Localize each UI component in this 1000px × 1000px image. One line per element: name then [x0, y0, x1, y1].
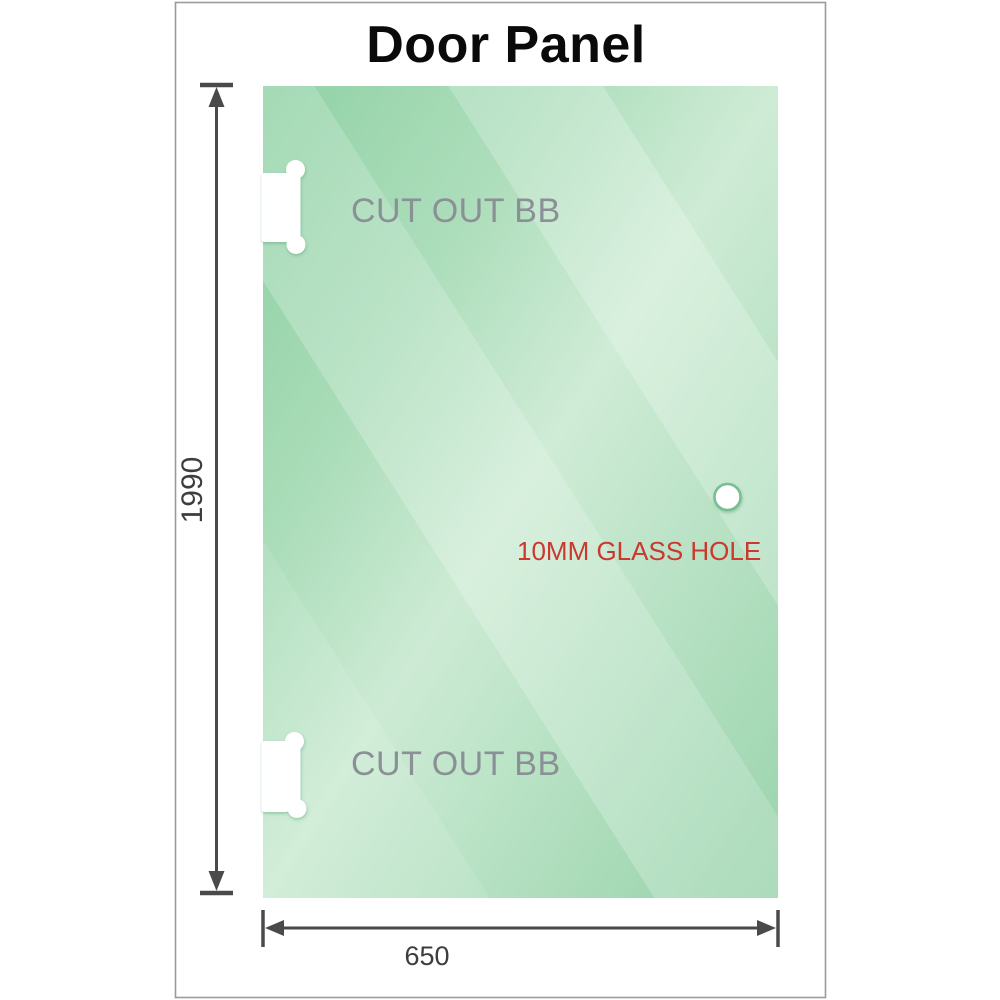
hinge-cutout-bottom [262, 732, 307, 818]
page-title: Door Panel [366, 16, 646, 74]
cutout-top-label: CUT OUT BB [351, 192, 561, 230]
width-dim-value: 650 [404, 941, 449, 971]
height-dim-value: 1990 [176, 457, 209, 524]
hinge-cutout-top [262, 160, 306, 254]
glass-hole [715, 484, 741, 510]
door-panel-diagram: Door Panel CUT OUT BB CUT OUT BB 10MM GL… [0, 0, 1000, 1000]
cutout-bottom-label: CUT OUT BB [351, 745, 561, 783]
glass-hole-label: 10MM GLASS HOLE [517, 536, 761, 566]
